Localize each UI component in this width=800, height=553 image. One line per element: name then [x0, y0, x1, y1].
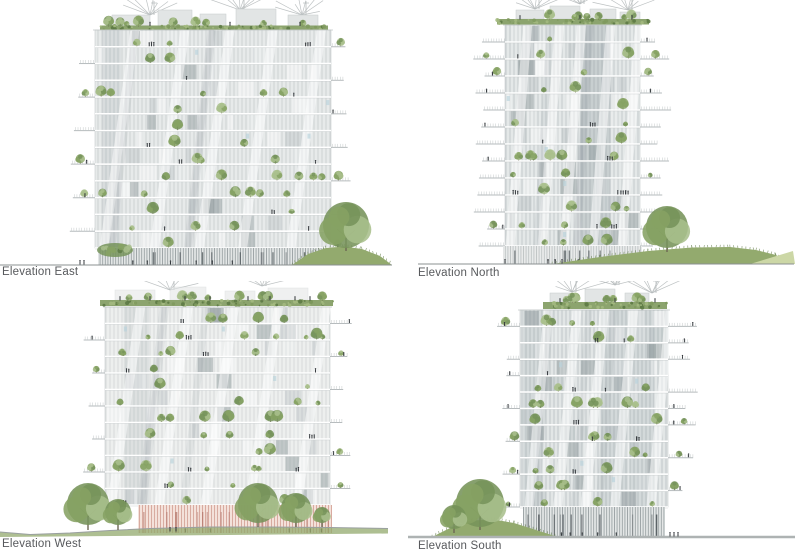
- balconies-left: [473, 39, 505, 247]
- elevation-south-drawing: [400, 281, 800, 552]
- elevation-west-label: Elevation West: [2, 538, 81, 551]
- large-tree: [63, 483, 111, 530]
- panel-elevation-south: Elevation South: [400, 281, 800, 552]
- panel-elevation-west: Elevation West: [0, 281, 400, 552]
- balconies-left: [83, 336, 105, 472]
- large-tree: [642, 206, 690, 252]
- elevation-east-drawing: [0, 0, 400, 281]
- elevation-south-label: Elevation South: [418, 540, 502, 553]
- facade: [93, 30, 333, 249]
- facade: [103, 307, 332, 506]
- elevation-west-drawing: [0, 281, 400, 552]
- elevation-east-label: Elevation East: [2, 266, 78, 279]
- elevation-north-label: Elevation North: [418, 267, 500, 280]
- elevation-sheet: Elevation East Elevation North Elevation…: [0, 0, 800, 552]
- balconies-left: [497, 317, 520, 507]
- roof-canopy: [122, 0, 323, 15]
- roof-canopy: [550, 281, 681, 293]
- panel-elevation-east: Elevation East: [0, 0, 400, 281]
- ground-floor: [523, 507, 665, 537]
- roof-canopy: [515, 0, 654, 10]
- elevation-north-drawing: [400, 0, 800, 281]
- panel-elevation-north: Elevation North: [400, 0, 800, 281]
- balconies-right: [668, 322, 698, 491]
- balconies-left: [70, 60, 95, 231]
- balconies-right: [330, 319, 352, 488]
- ground-people: [79, 260, 84, 265]
